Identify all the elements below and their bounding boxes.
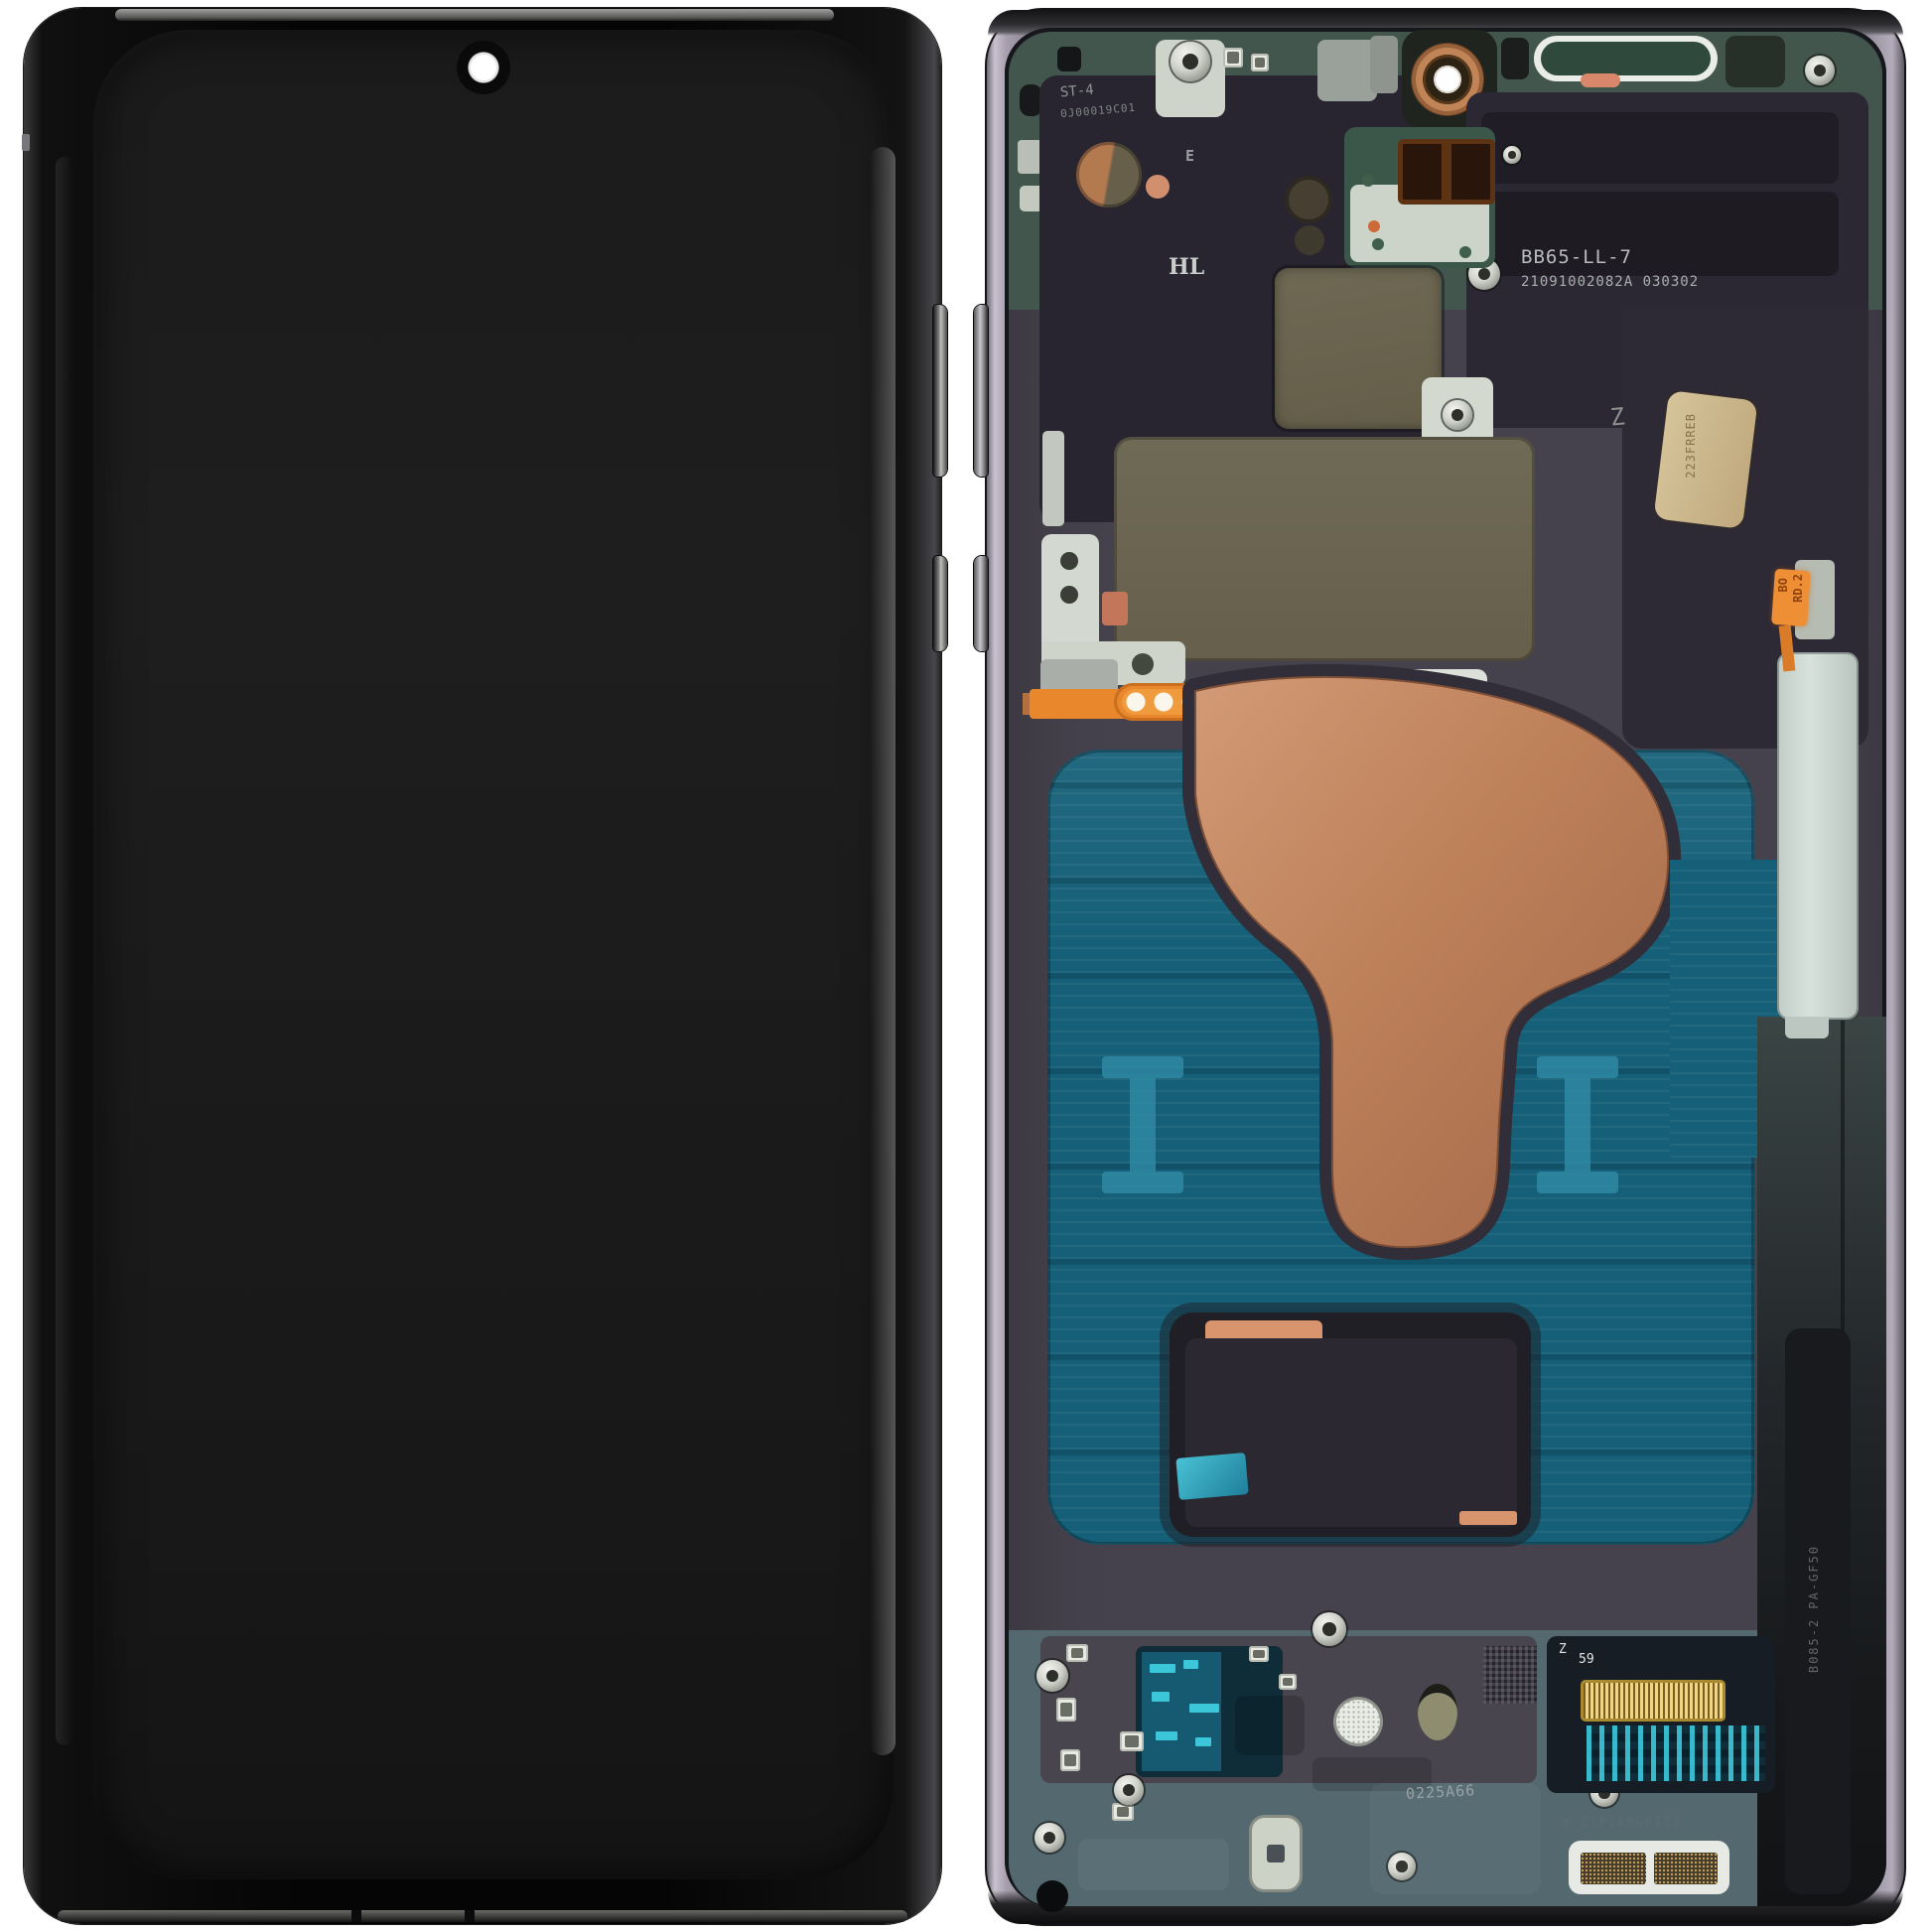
- stamp-59: 59: [1579, 1652, 1594, 1667]
- stamp-e: E: [1185, 147, 1194, 165]
- adhesive-h-watermark: [1102, 1056, 1183, 1193]
- foam-pad: [1275, 268, 1442, 429]
- smd-component: [1189, 1704, 1219, 1713]
- solder-pad: [1112, 1803, 1134, 1821]
- copper-contact-dot: [1146, 175, 1170, 199]
- front-view-phone: [24, 8, 941, 1924]
- volume-button: [933, 305, 947, 477]
- adhesive-h-watermark: [1537, 1056, 1618, 1193]
- power-button: [974, 556, 988, 651]
- smd-component: [1183, 1660, 1198, 1669]
- metal-strip: [1042, 431, 1064, 526]
- teal-sticker: [1175, 1452, 1248, 1500]
- screw: [1443, 400, 1472, 430]
- screw: [1036, 1660, 1068, 1692]
- flex-cable-label: 223FRREB: [1684, 413, 1698, 479]
- copper-contact-pad: [1102, 592, 1128, 625]
- smd-component: [1150, 1664, 1175, 1673]
- curved-glass-highlight-right: [870, 147, 896, 1755]
- mint-shield-tab: [1785, 1017, 1829, 1038]
- volume-button: [974, 305, 988, 477]
- board-serial-etch: ⊕ 61F2BRGF45Z: [1563, 1815, 1682, 1829]
- casting-relief: [1370, 1783, 1541, 1894]
- solder-pad: [1120, 1731, 1144, 1751]
- punch-hole-camera: [457, 41, 510, 94]
- smd-component: [1195, 1737, 1211, 1746]
- pcb-dot: [1362, 175, 1374, 187]
- microphone-hole: [1285, 176, 1332, 223]
- panel-seam-line: [1841, 1021, 1845, 1343]
- key-contact-plate: [1249, 1815, 1303, 1892]
- solder-pad: [1060, 1749, 1080, 1771]
- graphite-pad: [1185, 1338, 1517, 1527]
- foam-pad-large: [1114, 437, 1535, 661]
- metal-bracket: [1317, 40, 1377, 101]
- screw: [1503, 146, 1521, 164]
- sensor-hole: [1295, 225, 1324, 255]
- mint-shield-plate: [1777, 652, 1859, 1020]
- solder-pad: [1056, 1698, 1076, 1722]
- antenna-line-notch: [351, 1910, 361, 1922]
- sticker-text: RD.2: [1791, 574, 1805, 603]
- copper-contact-pad: [1581, 73, 1620, 87]
- connector-window: [1654, 1853, 1718, 1884]
- casting-relief: [1235, 1696, 1305, 1755]
- copper-dot: [1368, 220, 1380, 232]
- tan-flex-cable: [1653, 390, 1757, 529]
- graphite-pad: [1481, 112, 1839, 184]
- smd-component: [1152, 1692, 1170, 1702]
- stamp-model-code: BB65-LL-7: [1521, 246, 1632, 268]
- casting-relief: [1078, 1839, 1229, 1890]
- chassis-cutout: [1725, 36, 1785, 87]
- speaker-mesh: [1336, 1700, 1380, 1743]
- screw: [1171, 42, 1210, 81]
- datamatrix-etch: [1483, 1646, 1537, 1704]
- smd-shield: [1223, 48, 1243, 68]
- smd-shield: [1251, 54, 1269, 71]
- rail-molded-text: B085-2 PA-GF50: [1807, 1545, 1821, 1673]
- stamp-hl: HL: [1169, 254, 1204, 280]
- bracket-hole: [1060, 552, 1078, 570]
- adhesive-disc: [1076, 142, 1142, 207]
- bracket-hole: [1132, 653, 1154, 675]
- screw: [1805, 56, 1835, 85]
- microphone-port: [1418, 1684, 1457, 1740]
- curved-glass-highlight-left: [56, 157, 73, 1745]
- pcb-dot: [1372, 238, 1384, 250]
- screw: [1312, 1612, 1346, 1646]
- solder-pad: [1066, 1644, 1088, 1662]
- smd-component: [1156, 1731, 1177, 1740]
- sticker-text: BO: [1776, 578, 1790, 592]
- flex-connector-window: [1541, 42, 1711, 75]
- solder-pad: [1279, 1674, 1297, 1690]
- board-to-board-connector: [1581, 1680, 1725, 1722]
- stamp-st4: ST-4: [1059, 82, 1094, 101]
- solder-pad: [1249, 1646, 1269, 1662]
- bottom-frame-edge: [58, 1910, 907, 1922]
- screw-hole: [1036, 1880, 1068, 1912]
- antenna-line-notch: [22, 134, 30, 151]
- screw: [1035, 1823, 1064, 1853]
- screw: [1114, 1775, 1144, 1805]
- bracket-hole: [1060, 586, 1078, 604]
- product-photo-display-assembly: ST-4 0J00019C01 E HL BB65-LL-7 210910020…: [0, 0, 1932, 1932]
- antenna-line-notch: [465, 1910, 475, 1922]
- adhesive-pad-white: [1251, 669, 1487, 725]
- stamp-z-connector: Z: [1559, 1642, 1567, 1657]
- pcb-dot: [1459, 246, 1471, 258]
- power-button: [933, 556, 947, 651]
- stamp-mid-serial: 21091002082A 030302: [1521, 274, 1699, 290]
- metal-bracket: [1370, 36, 1398, 93]
- display-screen: [93, 30, 894, 1879]
- chassis-cutout: [1057, 47, 1081, 71]
- pcb-components: [1587, 1725, 1765, 1781]
- stamp-z: Z: [1609, 402, 1626, 431]
- earpiece-port-window: [1398, 139, 1495, 205]
- top-frame-edge: [115, 9, 834, 21]
- copper-pad: [1459, 1511, 1517, 1525]
- back-view-frame: ST-4 0J00019C01 E HL BB65-LL-7 210910020…: [985, 8, 1906, 1926]
- chassis-cutout: [1501, 38, 1529, 79]
- connector-window: [1581, 1853, 1646, 1884]
